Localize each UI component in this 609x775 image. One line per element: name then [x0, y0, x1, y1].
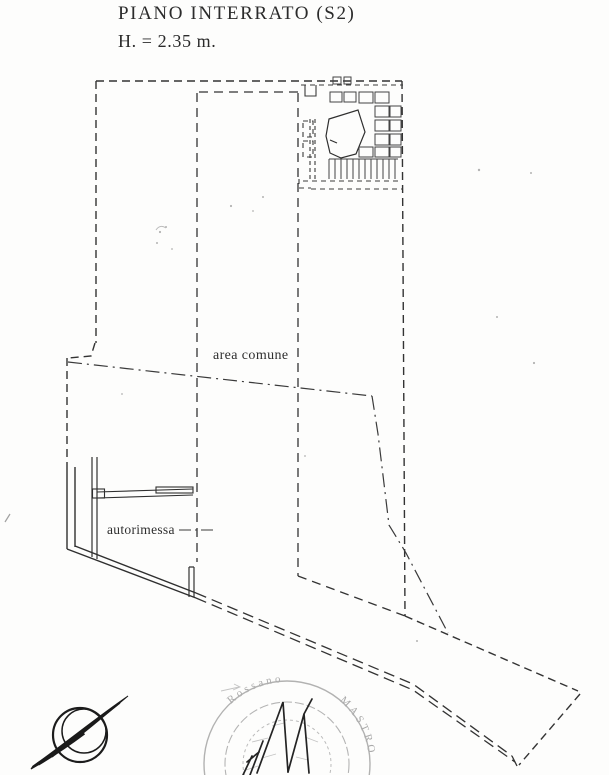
cellar-cells — [330, 77, 401, 157]
cellar-cell — [390, 134, 401, 145]
cellar-cell — [303, 141, 313, 157]
cellar-cell — [303, 121, 313, 137]
garage-south-wall-outer — [67, 549, 196, 598]
cellar-cell — [375, 134, 389, 145]
ramp-line-bottom — [97, 495, 193, 498]
cellar-cell — [375, 106, 389, 117]
cellar-cell — [359, 147, 373, 157]
cellar-comb — [329, 159, 398, 179]
cellar-cell — [330, 92, 342, 102]
cellar-cell — [375, 120, 389, 131]
label-area-comune: area comune — [213, 348, 289, 363]
ramp-block-left — [93, 489, 105, 498]
dashdot-horizontal — [68, 362, 372, 396]
lot-boundary — [67, 81, 580, 765]
signature — [243, 699, 312, 775]
scanned-floor-plan-page: PIANO INTERRATO (S2) H. = 2.35 m. — [0, 0, 609, 775]
cellar-cell — [375, 92, 389, 103]
signature-stroke — [257, 702, 288, 773]
boundary-right — [402, 81, 405, 616]
signature-stroke — [288, 714, 309, 773]
boundary-right-diagonal — [405, 616, 578, 691]
cellar-block — [299, 77, 403, 189]
label-autorimessa: autorimessa — [107, 522, 175, 537]
block-bottom-step — [299, 179, 311, 188]
scan-noise — [5, 169, 535, 642]
ramp-line-top — [97, 489, 193, 492]
cellar-cell — [390, 147, 401, 157]
cellar-cell — [344, 92, 356, 102]
cellar-cell — [375, 147, 389, 157]
dashdot-descending — [372, 396, 448, 633]
cellar-cell — [390, 120, 401, 131]
block-top-notch — [305, 85, 316, 96]
bottom-strip-walls — [196, 593, 517, 766]
north-arrow-icon — [31, 696, 128, 769]
cellar-cell — [390, 106, 401, 117]
garage-ramp — [93, 487, 194, 498]
parcel-line-right-diagonal — [298, 576, 405, 616]
boundary-strip-right-edge — [519, 694, 580, 765]
boundary-left-step — [68, 343, 95, 358]
floor-plan-drawing: area comune autorimessa Rossano MASTRO — [0, 0, 609, 775]
cellar-cell — [359, 92, 373, 103]
stamp-name-right: MASTRO — [337, 694, 377, 756]
strip-lower-line — [196, 598, 515, 762]
garage-south-wall-inner — [75, 546, 196, 593]
